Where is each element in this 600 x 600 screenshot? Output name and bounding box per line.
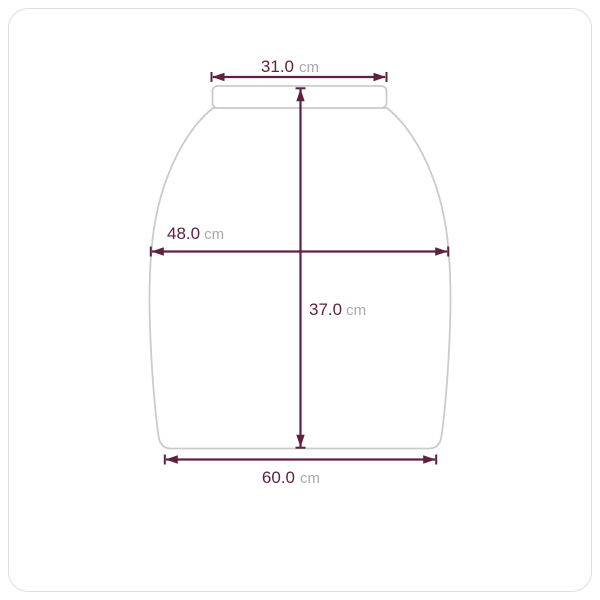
measurement-unit: cm <box>299 60 319 75</box>
measurement-unit: cm <box>300 471 320 486</box>
measurement-value: 60.0 <box>262 469 295 486</box>
measurement-value: 37.0 <box>309 301 342 318</box>
dim-label-mid-width: 48.0 cm <box>167 225 224 242</box>
measurement-value: 48.0 <box>167 225 200 242</box>
garment-size-diagram <box>0 0 600 600</box>
measurement-value: 31.0 <box>261 58 294 75</box>
measurement-unit: cm <box>346 303 366 318</box>
measurement-unit: cm <box>204 227 224 242</box>
dim-label-length: 37.0 cm <box>309 301 366 318</box>
dim-bottom-width <box>165 455 436 465</box>
